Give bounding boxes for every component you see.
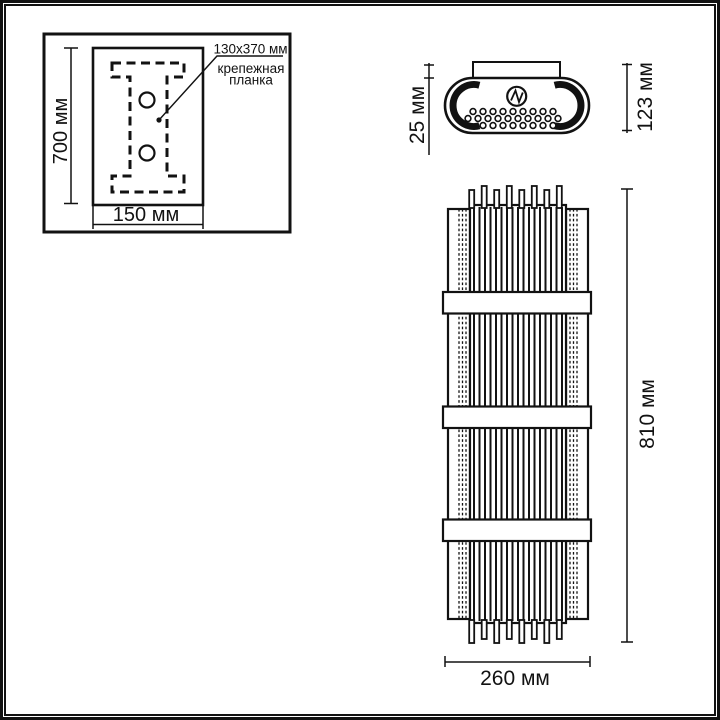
callout-size-label: 130x370 мм xyxy=(213,42,287,57)
lamp-front-view: 810 мм 260 мм xyxy=(420,175,700,700)
height-dim-label: 810 мм xyxy=(636,379,659,449)
callout-name-line2: планка xyxy=(229,73,273,88)
band-middle xyxy=(443,407,591,429)
plate-height-dim-label: 700 мм xyxy=(50,98,72,164)
plate-width-dim-label: 150 мм xyxy=(113,204,179,226)
band-top xyxy=(443,292,591,314)
mounting-hole-bottom xyxy=(140,146,155,161)
mounting-hole-top xyxy=(140,93,155,108)
body-depth-dim-line xyxy=(622,63,632,133)
mounting-plate-panel: 130x370 мм крепежная планка 700 мм 150 м… xyxy=(40,30,300,240)
lamp-symbol-icon xyxy=(507,87,526,106)
mounting-bracket-top xyxy=(473,62,560,79)
width-dim-line xyxy=(445,656,590,667)
width-dim-label: 260 мм xyxy=(480,667,550,690)
body-depth-dim-label: 123 мм xyxy=(634,62,657,132)
band-bottom xyxy=(443,520,591,542)
lamp-top-view: 25 мм 123 мм xyxy=(395,40,665,165)
wall-plate-outline xyxy=(93,48,203,205)
bracket-depth-dim-label: 25 мм xyxy=(406,86,429,144)
height-dim-line xyxy=(621,189,633,642)
